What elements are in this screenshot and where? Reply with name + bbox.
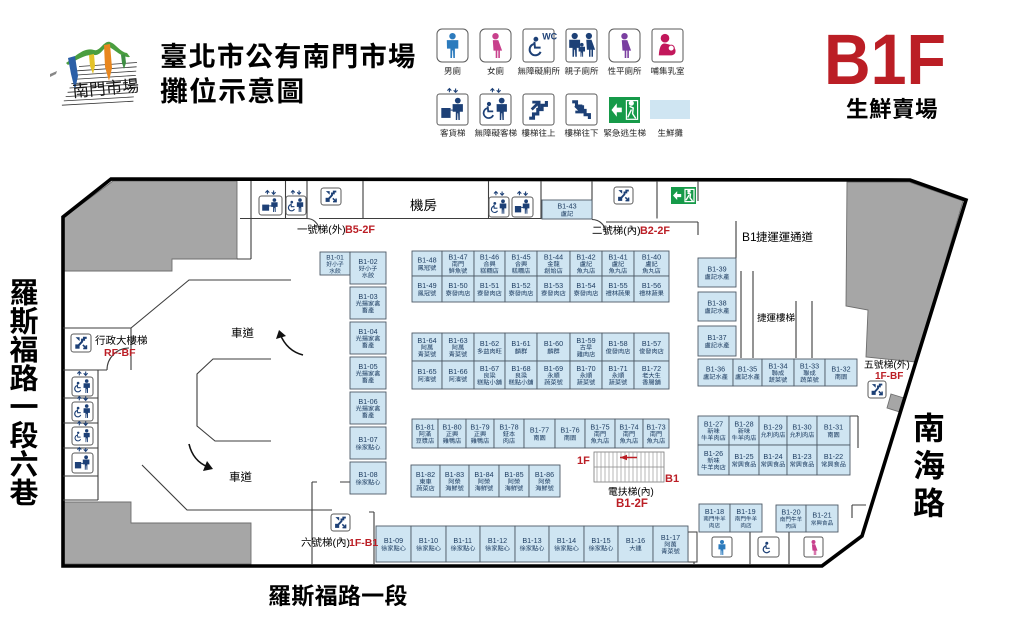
svg-text:B1-72: B1-72 (642, 364, 661, 373)
svg-text:B1-44: B1-44 (544, 252, 563, 261)
svg-text:B1-54: B1-54 (576, 281, 595, 290)
svg-text:B1-38: B1-38 (707, 298, 726, 307)
svg-text:B1-80: B1-80 (442, 422, 461, 431)
svg-text:B1-86: B1-86 (535, 470, 554, 479)
svg-text:B1-84: B1-84 (474, 470, 493, 479)
svg-text:B1-74: B1-74 (619, 422, 638, 431)
svg-text:B1-15: B1-15 (591, 536, 610, 545)
svg-text:B1-83: B1-83 (445, 470, 464, 479)
svg-text:1F-BF: 1F-BF (875, 371, 903, 382)
svg-text:B1-33: B1-33 (800, 361, 819, 370)
svg-text:B5-2F: B5-2F (345, 224, 375, 236)
svg-text:B1-11: B1-11 (453, 536, 472, 545)
svg-text:B1-48: B1-48 (417, 255, 436, 264)
svg-text:B1-63: B1-63 (448, 336, 467, 345)
svg-text:WC: WC (542, 32, 557, 42)
svg-text:B1-26: B1-26 (704, 449, 723, 458)
svg-text:B1-13: B1-13 (522, 536, 541, 545)
svg-text:B1-75: B1-75 (590, 422, 609, 431)
svg-text:B1-06: B1-06 (358, 397, 377, 406)
svg-text:B1-77: B1-77 (530, 425, 549, 434)
svg-text:B1-47: B1-47 (448, 252, 467, 261)
svg-text:B1-17: B1-17 (661, 533, 680, 542)
svg-text:(: ( (333, 537, 337, 549)
svg-text:B1-69: B1-69 (544, 364, 563, 373)
svg-text:B1-62: B1-62 (480, 339, 499, 348)
svg-text:B1-08: B1-08 (358, 470, 377, 479)
svg-text:B1-36: B1-36 (706, 364, 725, 373)
svg-text:B1-29: B1-29 (763, 422, 782, 431)
svg-text:B1-46: B1-46 (480, 252, 499, 261)
svg-text:B1-03: B1-03 (358, 292, 377, 301)
svg-text:B1-16: B1-16 (626, 536, 645, 545)
svg-text:B1-31: B1-31 (824, 422, 843, 431)
svg-text:1F-B1: 1F-B1 (349, 537, 378, 549)
svg-text:1F: 1F (577, 455, 590, 467)
svg-text:): ) (651, 487, 654, 498)
svg-text:B1-20: B1-20 (781, 507, 800, 516)
svg-text:): ) (907, 360, 910, 371)
svg-text:B1-73: B1-73 (646, 422, 665, 431)
svg-text:B1-61: B1-61 (511, 339, 530, 348)
svg-text:B1-67: B1-67 (480, 364, 499, 373)
svg-text:B1-66: B1-66 (448, 367, 467, 376)
svg-text:B1: B1 (665, 473, 679, 485)
svg-text:B1-82: B1-82 (416, 470, 435, 479)
svg-text:B1-53: B1-53 (544, 281, 563, 290)
svg-text:B1-23: B1-23 (792, 452, 811, 461)
svg-text:B1-65: B1-65 (417, 367, 436, 376)
svg-text:B1-70: B1-70 (576, 364, 595, 373)
svg-text:B1-58: B1-58 (608, 339, 627, 348)
svg-text:B1-04: B1-04 (358, 327, 377, 336)
svg-text:B1-35: B1-35 (738, 364, 757, 373)
svg-text:(: ( (623, 226, 627, 237)
svg-text:B1-59: B1-59 (576, 336, 595, 345)
svg-text:B1-78: B1-78 (499, 422, 518, 431)
svg-text:B1: B1 (742, 230, 757, 244)
svg-text:B1-68: B1-68 (511, 364, 530, 373)
svg-text:B1-81: B1-81 (415, 422, 434, 431)
svg-text:B1-25: B1-25 (734, 452, 753, 461)
svg-text:B1-76: B1-76 (560, 425, 579, 434)
svg-text:B1-18: B1-18 (705, 507, 724, 516)
svg-text:B1-49: B1-49 (417, 281, 436, 290)
svg-text:B1-07: B1-07 (358, 435, 377, 444)
svg-text:B1-2F: B1-2F (616, 498, 648, 510)
svg-text:RF-BF: RF-BF (104, 347, 136, 359)
svg-text:B1-55: B1-55 (608, 281, 627, 290)
svg-text:B2-2F: B2-2F (640, 225, 670, 237)
svg-text:B1-22: B1-22 (824, 452, 843, 461)
svg-text:B1-60: B1-60 (544, 339, 563, 348)
svg-text:B1-64: B1-64 (417, 336, 436, 345)
svg-text:B1-09: B1-09 (384, 536, 403, 545)
svg-text:B1-32: B1-32 (831, 364, 850, 373)
svg-text:B1-71: B1-71 (608, 364, 627, 373)
svg-text:(: ( (328, 225, 332, 236)
svg-text:B1-39: B1-39 (707, 264, 726, 273)
svg-text:B1-45: B1-45 (511, 252, 530, 261)
svg-text:B1-21: B1-21 (812, 510, 831, 519)
svg-text:B1-30: B1-30 (792, 422, 811, 431)
svg-text:B1-37: B1-37 (707, 333, 726, 342)
svg-text:B1-02: B1-02 (358, 257, 377, 266)
svg-text:B1-10: B1-10 (419, 536, 438, 545)
svg-text:B1-52: B1-52 (511, 281, 530, 290)
svg-text:B1-24: B1-24 (763, 452, 782, 461)
svg-text:B1-50: B1-50 (448, 281, 467, 290)
svg-text:B1-85: B1-85 (504, 470, 523, 479)
svg-text:B1-40: B1-40 (642, 252, 661, 261)
svg-text:B1-12: B1-12 (488, 536, 507, 545)
svg-text:B1-34: B1-34 (768, 361, 787, 370)
svg-text:B1F: B1F (824, 21, 946, 100)
svg-text:B1-56: B1-56 (642, 281, 661, 290)
svg-text:B1-57: B1-57 (642, 339, 661, 348)
svg-text:B1-79: B1-79 (470, 422, 489, 431)
svg-text:B1-27: B1-27 (704, 419, 723, 428)
svg-text:B1-51: B1-51 (480, 281, 499, 290)
svg-text:B1-41: B1-41 (608, 252, 627, 261)
svg-text:B1-01: B1-01 (326, 254, 344, 261)
svg-text:B1-28: B1-28 (734, 419, 753, 428)
svg-text:B1-19: B1-19 (736, 507, 755, 516)
svg-text:B1-14: B1-14 (557, 536, 576, 545)
svg-text:B1-42: B1-42 (576, 252, 595, 261)
svg-text:B1-05: B1-05 (358, 362, 377, 371)
svg-text:B1-43: B1-43 (557, 201, 576, 210)
